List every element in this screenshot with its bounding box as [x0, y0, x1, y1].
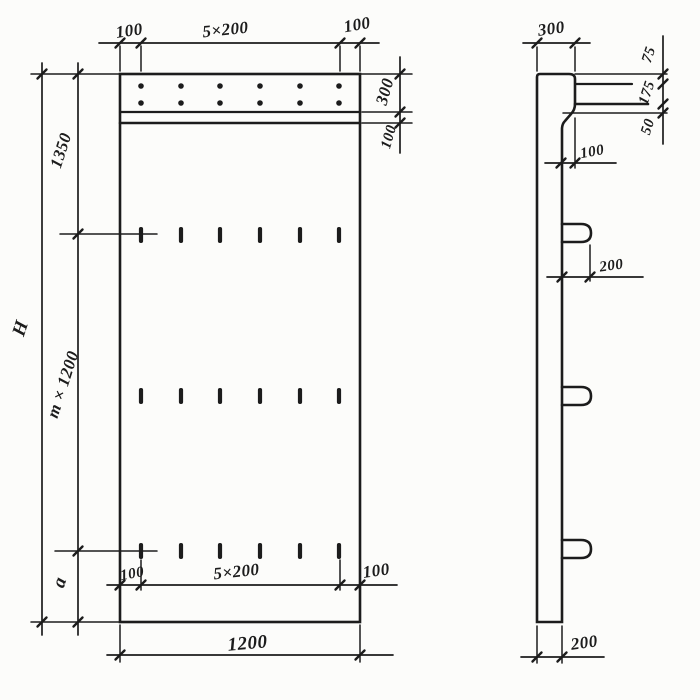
dim-front-middle-m1200: m × 1200	[43, 348, 83, 420]
dim-side-bottom-200: 200	[569, 631, 599, 654]
dot	[178, 100, 184, 106]
slot	[337, 388, 341, 404]
slot	[337, 543, 341, 559]
slot	[298, 227, 302, 243]
dim-side-50: 50	[638, 117, 658, 137]
slot	[179, 227, 183, 243]
slot	[258, 543, 262, 559]
slot	[298, 388, 302, 404]
dim-front-top-span: 5×200	[201, 18, 249, 42]
dim-front-bottom-span: 5×200	[212, 560, 260, 584]
slot	[179, 388, 183, 404]
front-view	[120, 74, 360, 622]
dot	[138, 83, 144, 89]
slot-row-1	[139, 227, 341, 243]
dim-front-top-left: 100	[115, 19, 144, 42]
slot	[218, 543, 222, 559]
slot	[258, 227, 262, 243]
slot	[337, 227, 341, 243]
dot	[297, 83, 303, 89]
dim-front-height-H: H	[8, 317, 33, 340]
loop	[562, 224, 591, 242]
dot	[217, 100, 223, 106]
slot	[218, 388, 222, 404]
slot	[139, 227, 143, 243]
dim-side-175: 175	[636, 79, 659, 107]
dot	[178, 83, 184, 89]
dim-front-ledge-100: 100	[378, 123, 400, 150]
dot	[257, 83, 263, 89]
panel-drawing-svg: 100 5×200 100 300 100 H 1350 m × 1200 a …	[0, 0, 700, 700]
dim-front-bottom-right: 100	[362, 559, 391, 582]
dim-front-top-right: 100	[342, 13, 372, 36]
dot	[257, 100, 263, 106]
panel-outline	[120, 74, 360, 622]
slot	[218, 227, 222, 243]
dim-side-step-100: 100	[579, 142, 605, 162]
dot	[336, 83, 342, 89]
dim-side-75: 75	[639, 45, 659, 65]
slot	[179, 543, 183, 559]
anchor-dots	[138, 83, 342, 106]
slot	[139, 388, 143, 404]
dim-front-lower-a: a	[48, 574, 71, 590]
loop	[562, 387, 591, 405]
dim-side-loop-200: 200	[597, 256, 624, 275]
dim-front-width-1200: 1200	[227, 631, 269, 655]
technical-drawing-sheet: 100 5×200 100 300 100 H 1350 m × 1200 a …	[0, 0, 700, 700]
dot	[336, 100, 342, 106]
dim-side-top-300: 300	[536, 17, 566, 40]
slot	[298, 543, 302, 559]
dim-front-upper-1350: 1350	[46, 130, 75, 170]
dot	[217, 83, 223, 89]
slot	[258, 388, 262, 404]
slot-row-2	[139, 388, 341, 404]
dim-front-band-300: 300	[372, 76, 398, 108]
dot	[297, 100, 303, 106]
dot	[138, 100, 144, 106]
slot-row-3	[139, 543, 341, 559]
loop	[562, 540, 591, 558]
